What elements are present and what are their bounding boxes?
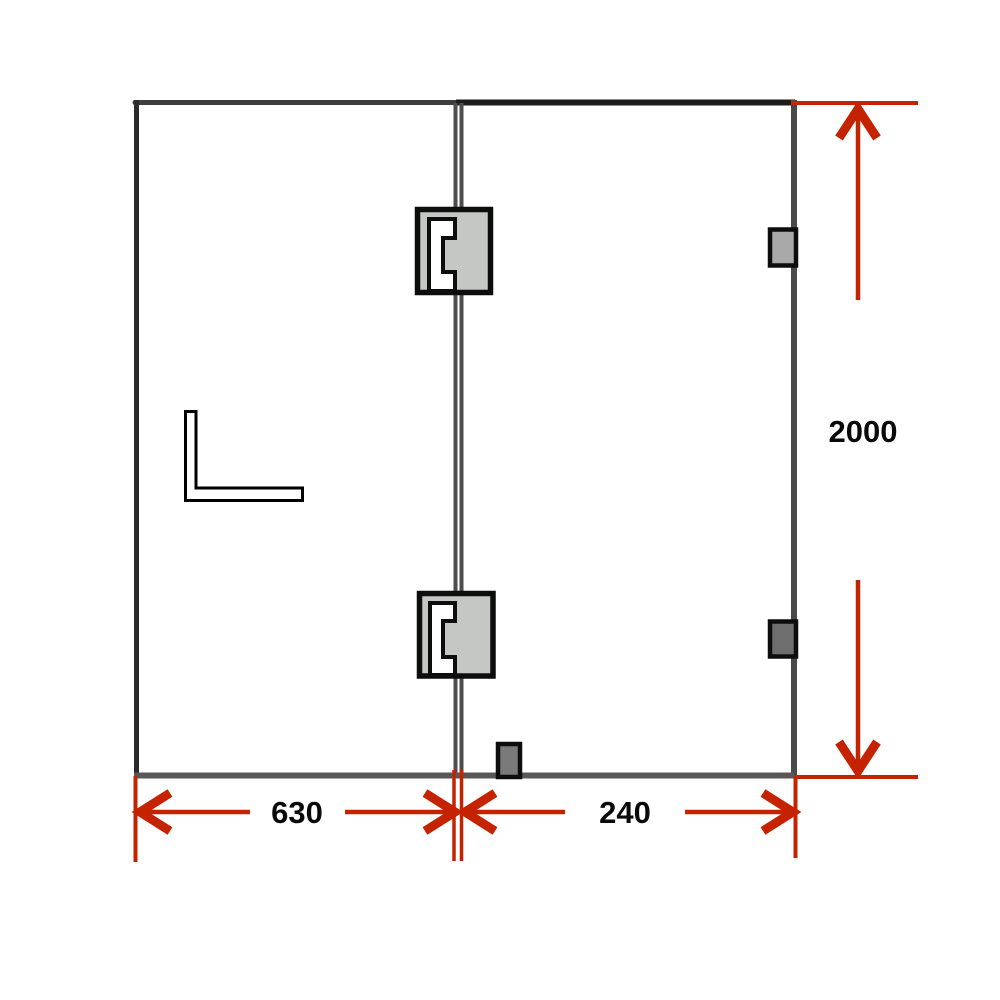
l-handle-icon <box>186 412 303 501</box>
hinge-top-icon <box>418 210 491 293</box>
bottom-bracket-icon <box>498 744 520 777</box>
hinge-bottom-icon <box>420 594 494 677</box>
edge-bracket-bottom-icon <box>770 622 796 657</box>
dimension-labels: 630 240 2000 <box>271 414 897 830</box>
drawing-canvas: 630 240 2000 <box>0 0 1000 1000</box>
edge-bracket-top-icon <box>770 230 796 266</box>
panel-drawing-svg: 630 240 2000 <box>0 0 1000 1000</box>
label-width-left: 630 <box>271 795 323 830</box>
dimension-annotations <box>136 103 919 862</box>
label-width-right: 240 <box>599 795 651 830</box>
label-height: 2000 <box>829 414 898 449</box>
